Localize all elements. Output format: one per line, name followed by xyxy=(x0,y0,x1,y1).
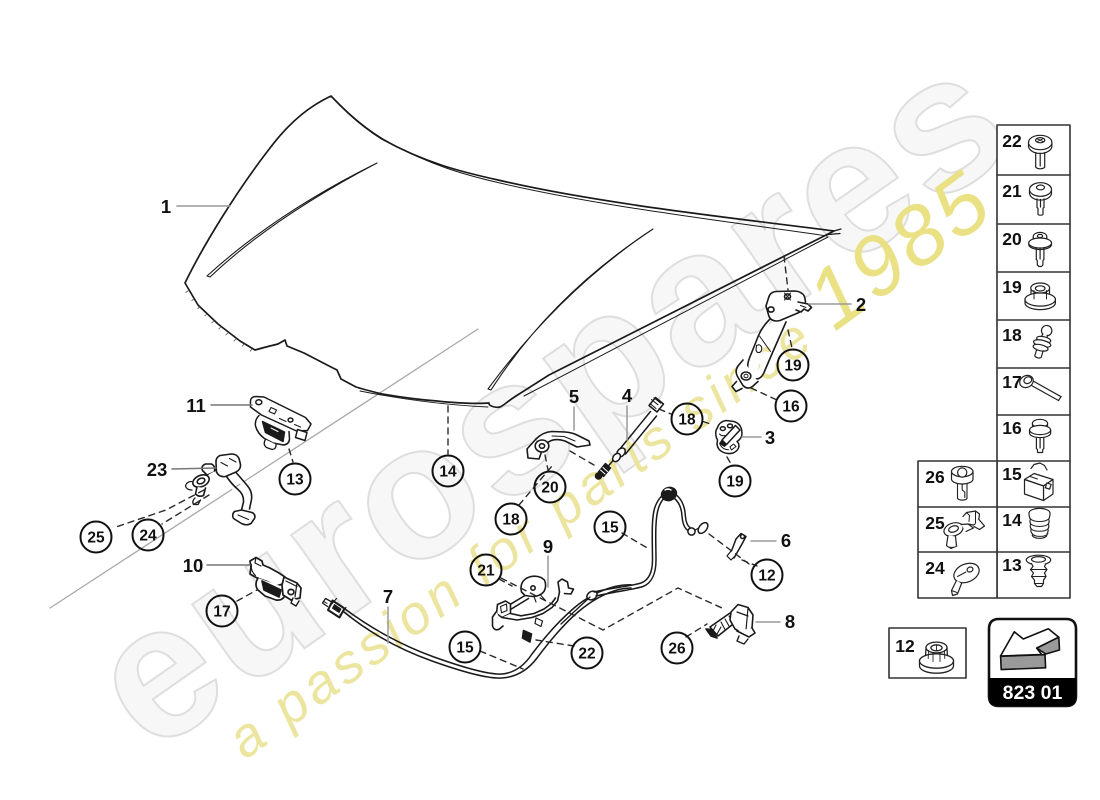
svg-text:24: 24 xyxy=(925,558,945,578)
svg-text:19: 19 xyxy=(784,358,802,375)
svg-text:21: 21 xyxy=(477,563,495,580)
svg-text:14: 14 xyxy=(439,464,457,481)
svg-text:5: 5 xyxy=(569,386,579,407)
svg-text:18: 18 xyxy=(1002,325,1022,345)
svg-text:20: 20 xyxy=(1002,229,1022,249)
svg-text:18: 18 xyxy=(502,512,520,529)
svg-text:8: 8 xyxy=(785,611,795,632)
svg-text:19: 19 xyxy=(726,474,744,491)
svg-text:4: 4 xyxy=(622,385,633,406)
svg-text:1: 1 xyxy=(161,196,171,217)
svg-text:20: 20 xyxy=(541,480,558,497)
svg-text:25: 25 xyxy=(87,530,105,547)
svg-text:10: 10 xyxy=(183,555,204,576)
svg-text:16: 16 xyxy=(782,399,800,416)
svg-text:15: 15 xyxy=(1002,464,1022,484)
svg-text:11: 11 xyxy=(186,395,206,416)
svg-text:21: 21 xyxy=(1002,181,1022,201)
svg-text:18: 18 xyxy=(678,412,696,429)
svg-text:13: 13 xyxy=(286,472,304,489)
svg-text:12: 12 xyxy=(895,636,915,656)
svg-text:19: 19 xyxy=(1002,277,1022,297)
svg-text:23: 23 xyxy=(147,459,168,480)
svg-text:17: 17 xyxy=(213,604,230,621)
svg-text:15: 15 xyxy=(456,640,474,657)
svg-text:6: 6 xyxy=(781,530,791,551)
svg-text:22: 22 xyxy=(1002,131,1022,151)
svg-text:15: 15 xyxy=(601,520,619,537)
svg-text:22: 22 xyxy=(578,646,595,663)
svg-text:2: 2 xyxy=(856,294,866,315)
svg-text:12: 12 xyxy=(758,568,775,585)
svg-text:26: 26 xyxy=(668,641,686,658)
svg-text:14: 14 xyxy=(1002,510,1022,530)
svg-text:9: 9 xyxy=(543,536,553,557)
svg-text:16: 16 xyxy=(1002,418,1022,438)
svg-text:3: 3 xyxy=(765,427,775,448)
svg-text:13: 13 xyxy=(1002,555,1022,575)
svg-text:25: 25 xyxy=(925,513,945,533)
svg-text:26: 26 xyxy=(925,467,945,487)
svg-text:823 01: 823 01 xyxy=(1003,682,1063,704)
svg-text:17: 17 xyxy=(1002,372,1021,392)
svg-text:7: 7 xyxy=(383,586,393,607)
svg-text:24: 24 xyxy=(139,528,157,545)
